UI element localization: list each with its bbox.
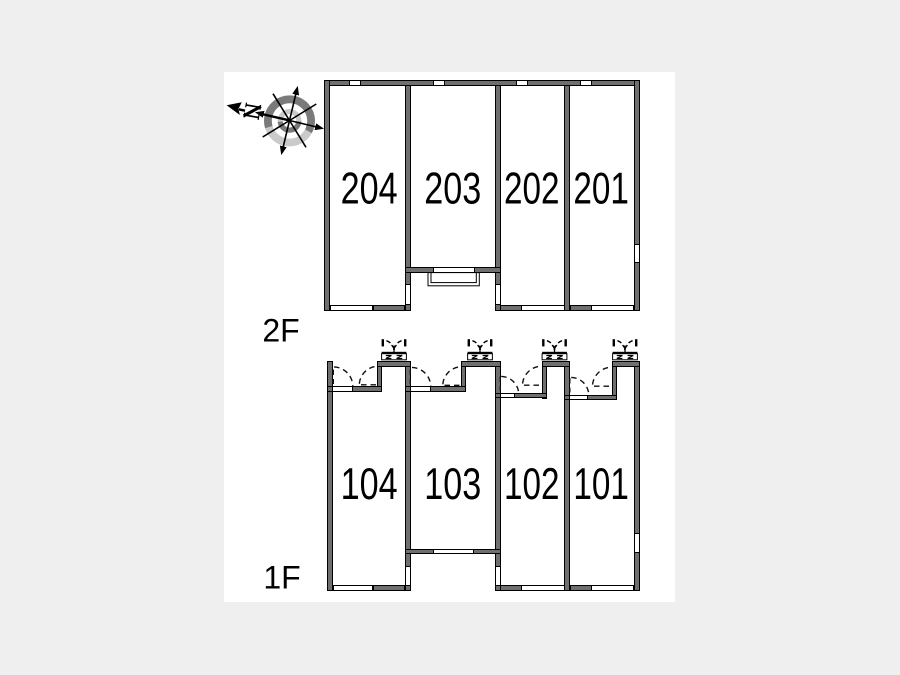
svg-text:202: 202 — [504, 165, 560, 214]
svg-text:101: 101 — [573, 460, 629, 509]
svg-text:103: 103 — [424, 460, 481, 509]
svg-text:102: 102 — [504, 460, 560, 509]
svg-text:204: 204 — [341, 165, 398, 214]
svg-text:104: 104 — [341, 460, 398, 509]
svg-text:203: 203 — [424, 165, 481, 214]
svg-text:2F: 2F — [262, 313, 299, 349]
svg-text:201: 201 — [573, 165, 629, 214]
svg-text:1F: 1F — [263, 560, 300, 596]
